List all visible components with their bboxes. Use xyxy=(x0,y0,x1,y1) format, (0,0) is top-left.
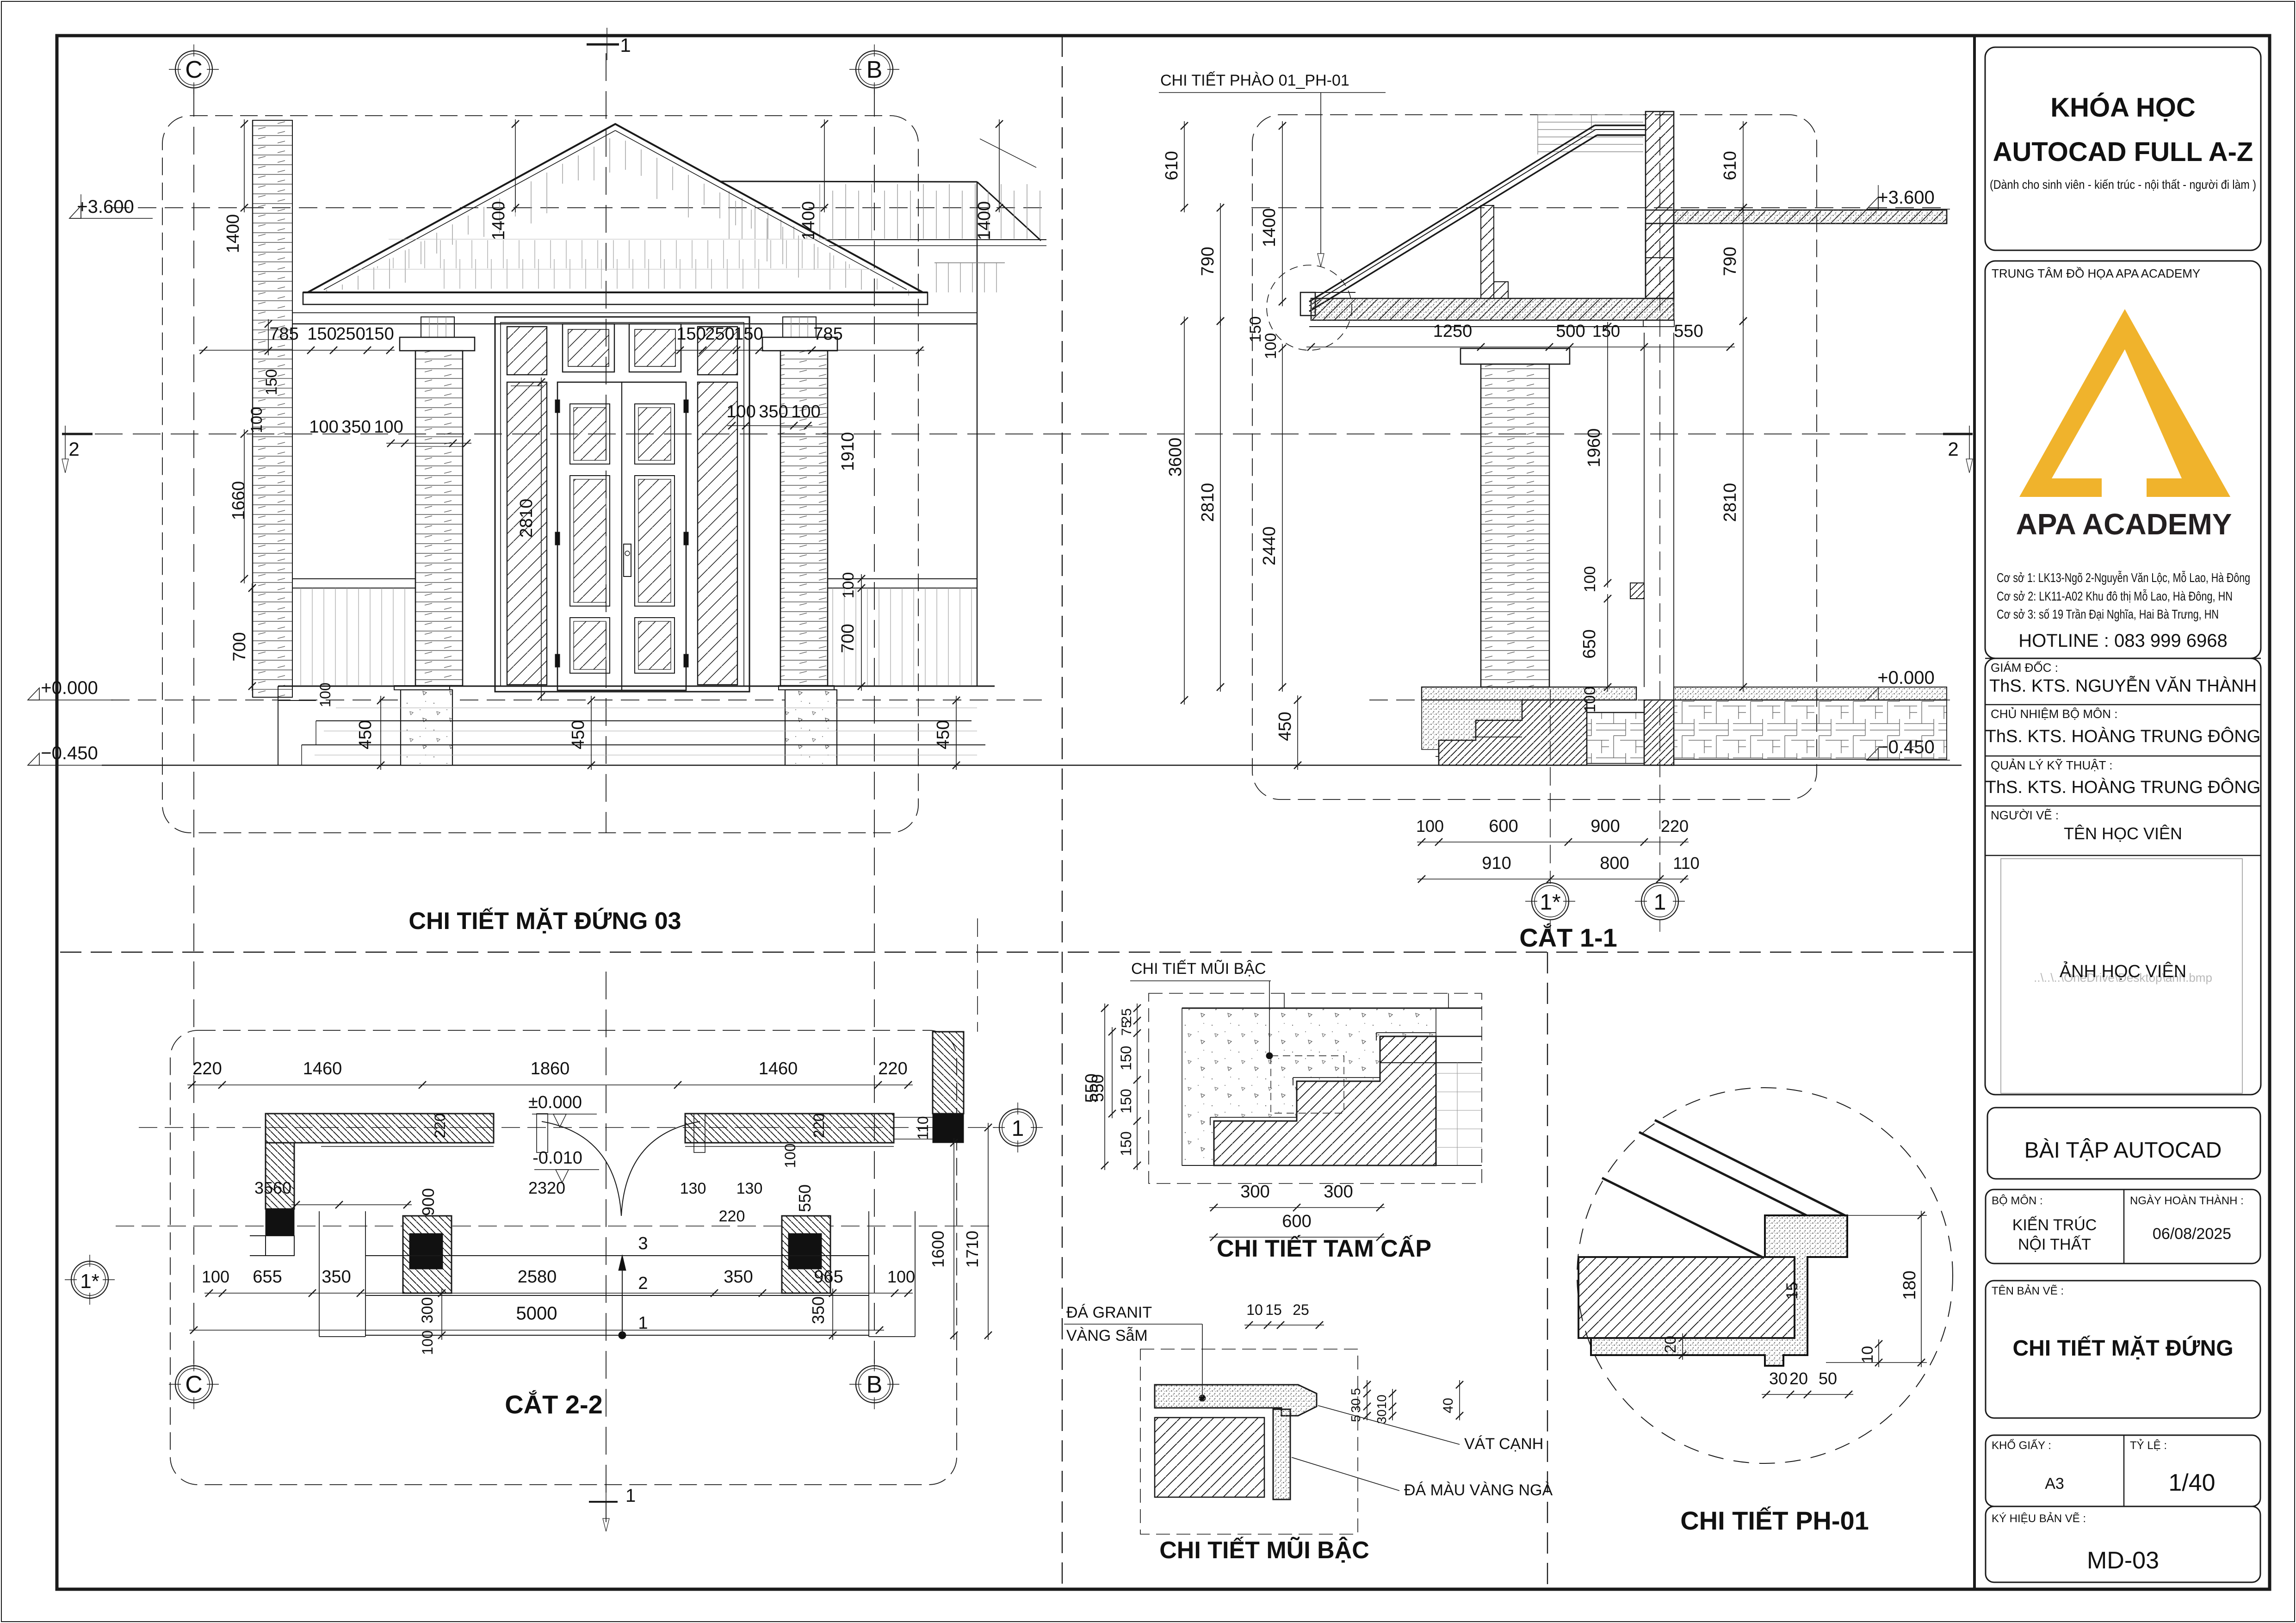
svg-text:910: 910 xyxy=(1482,854,1511,873)
svg-text:APA ACADEMY: APA ACADEMY xyxy=(2016,508,2232,541)
svg-text:700: 700 xyxy=(230,632,249,661)
svg-text:350: 350 xyxy=(322,1267,351,1287)
svg-text:785: 785 xyxy=(269,324,298,344)
svg-text:50: 50 xyxy=(1819,1369,1837,1388)
svg-text:75: 75 xyxy=(1119,1020,1134,1035)
svg-text:150: 150 xyxy=(1118,1131,1134,1156)
svg-text:+3.600: +3.600 xyxy=(1877,187,1934,208)
svg-text:CHI TIẾT MŨI BẬC: CHI TIẾT MŨI BẬC xyxy=(1131,960,1266,978)
svg-text:HOTLINE : 083 999 6968: HOTLINE : 083 999 6968 xyxy=(2018,631,2227,651)
svg-text:2810: 2810 xyxy=(517,499,536,538)
svg-text:100: 100 xyxy=(202,1267,229,1286)
svg-text:100: 100 xyxy=(374,417,403,437)
svg-text:1*: 1* xyxy=(1540,890,1560,915)
svg-text:(Dành cho sinh viên - kiến tr: (Dành cho sinh viên - kiến trúc - nội th… xyxy=(1990,178,2256,192)
svg-text:30: 30 xyxy=(1769,1369,1788,1388)
svg-text:10: 10 xyxy=(1246,1301,1263,1318)
svg-text:2810: 2810 xyxy=(1198,483,1218,522)
svg-text:1250: 1250 xyxy=(1433,322,1473,341)
svg-text:100: 100 xyxy=(1416,817,1444,836)
svg-text:KHÓA HỌC: KHÓA HỌC xyxy=(2050,93,2196,123)
svg-text:KHỔ GIẤY :: KHỔ GIẤY : xyxy=(1992,1439,2051,1452)
svg-text:550: 550 xyxy=(1674,322,1703,341)
svg-text:300: 300 xyxy=(419,1297,436,1324)
svg-text:10: 10 xyxy=(1859,1346,1876,1363)
svg-text:110: 110 xyxy=(1673,854,1699,873)
svg-text:655: 655 xyxy=(253,1267,282,1287)
svg-text:350: 350 xyxy=(341,417,371,437)
svg-text:B: B xyxy=(866,56,883,83)
svg-text:250: 250 xyxy=(336,324,365,344)
svg-text:1400: 1400 xyxy=(223,214,243,254)
svg-text:A3: A3 xyxy=(2045,1475,2064,1493)
svg-text:1400: 1400 xyxy=(489,201,508,241)
svg-text:CẮT 1-1: CẮT 1-1 xyxy=(1519,923,1617,952)
svg-text:TRUNG TÂM ĐỒ HỌA APA ACADEMY: TRUNG TÂM ĐỒ HỌA APA ACADEMY xyxy=(1992,266,2200,280)
svg-text:610: 610 xyxy=(1162,151,1182,180)
svg-text:220: 220 xyxy=(878,1059,907,1078)
svg-text:KIẾN TRÚC: KIẾN TRÚC xyxy=(2012,1216,2097,1234)
svg-text:BÀI TẬP AUTOCAD: BÀI TẬP AUTOCAD xyxy=(2024,1138,2222,1163)
svg-text:610: 610 xyxy=(1720,151,1740,180)
svg-text:1910: 1910 xyxy=(838,432,858,471)
svg-text:1960: 1960 xyxy=(1584,428,1604,468)
svg-text:Cơ sở 2: LK11-A02 Khu đô thị M: Cơ sở 2: LK11-A02 Khu đô thị Mỗ Lao, Hà … xyxy=(1997,589,2233,603)
svg-text:600: 600 xyxy=(1489,817,1518,836)
svg-text:Cơ sở 3: số 19 Trần Đại Nghĩa,: Cơ sở 3: số 19 Trần Đại Nghĩa, Hai Bà Tr… xyxy=(1997,607,2219,621)
svg-text:ĐÁ MÀU VÀNG NGÀ: ĐÁ MÀU VÀNG NGÀ xyxy=(1404,1481,1553,1499)
svg-text:1460: 1460 xyxy=(303,1059,342,1078)
svg-text:NGƯỜI VẼ :: NGƯỜI VẼ : xyxy=(1991,808,2059,822)
svg-text:220: 220 xyxy=(811,1113,827,1138)
svg-text:B: B xyxy=(866,1371,883,1398)
svg-text:150: 150 xyxy=(1592,322,1620,341)
svg-text:150: 150 xyxy=(676,324,706,344)
svg-text:1/40: 1/40 xyxy=(2168,1469,2215,1496)
svg-text:450: 450 xyxy=(569,720,588,749)
svg-text:2: 2 xyxy=(68,438,79,460)
svg-text:100: 100 xyxy=(1581,687,1599,713)
svg-text:20: 20 xyxy=(1662,1336,1679,1353)
svg-text:CHI TIẾT TAM CẤP: CHI TIẾT TAM CẤP xyxy=(1217,1235,1431,1262)
svg-text:20: 20 xyxy=(1789,1369,1808,1388)
svg-text:150: 150 xyxy=(307,324,336,344)
svg-text:ĐÁ GRANIT: ĐÁ GRANIT xyxy=(1066,1304,1152,1321)
svg-text:3: 3 xyxy=(638,1234,648,1253)
svg-text:CHI TIẾT PH-01: CHI TIẾT PH-01 xyxy=(1680,1506,1869,1535)
svg-text:100: 100 xyxy=(248,407,266,434)
svg-text:30: 30 xyxy=(1374,1409,1389,1424)
svg-text:NỘI THẤT: NỘI THẤT xyxy=(2018,1236,2091,1253)
svg-text:450: 450 xyxy=(1275,712,1295,741)
svg-text:1: 1 xyxy=(620,34,631,56)
svg-text:1400: 1400 xyxy=(975,201,994,241)
svg-text:MD-03: MD-03 xyxy=(2087,1547,2159,1574)
svg-text:1: 1 xyxy=(1012,1116,1024,1141)
svg-text:CHI TIẾT MẶT ĐỨNG: CHI TIẾT MẶT ĐỨNG xyxy=(2012,1335,2233,1361)
svg-text:220: 220 xyxy=(192,1059,222,1078)
svg-text:100: 100 xyxy=(840,572,857,599)
svg-text:100: 100 xyxy=(791,402,820,421)
svg-text:100: 100 xyxy=(309,417,338,437)
svg-text:5000: 5000 xyxy=(516,1303,557,1324)
svg-text:100: 100 xyxy=(419,1330,436,1355)
svg-text:350: 350 xyxy=(724,1267,753,1287)
svg-text:300: 300 xyxy=(1324,1182,1353,1202)
svg-text:06/08/2025: 06/08/2025 xyxy=(2153,1225,2231,1243)
svg-text:790: 790 xyxy=(1720,247,1740,276)
svg-text:25: 25 xyxy=(1293,1301,1309,1318)
svg-text:1460: 1460 xyxy=(759,1059,798,1078)
svg-text:ThS. KTS. HOÀNG TRUNG ĐÔNG: ThS. KTS. HOÀNG TRUNG ĐÔNG xyxy=(1986,777,2261,797)
svg-text:100: 100 xyxy=(317,682,334,707)
svg-text:Cơ sở 1: LK13-Ngõ 2-Nguyễn Văn: Cơ sở 1: LK13-Ngõ 2-Nguyễn Văn Lộc, Mỗ L… xyxy=(1997,570,2250,585)
svg-text:+0.000: +0.000 xyxy=(1877,668,1934,688)
svg-text:1: 1 xyxy=(1654,890,1666,915)
svg-text:1400: 1400 xyxy=(1260,208,1279,248)
svg-text:1860: 1860 xyxy=(531,1059,570,1078)
svg-text:350: 350 xyxy=(759,402,788,421)
svg-text:1600: 1600 xyxy=(928,1231,947,1268)
svg-text:150: 150 xyxy=(263,369,280,396)
svg-text:350: 350 xyxy=(809,1296,828,1324)
svg-text:100: 100 xyxy=(1262,333,1280,359)
svg-text:790: 790 xyxy=(1198,247,1218,276)
svg-text:150: 150 xyxy=(365,324,394,344)
svg-text:100: 100 xyxy=(1581,566,1599,593)
svg-text:40: 40 xyxy=(1441,1398,1456,1413)
svg-text:2580: 2580 xyxy=(518,1267,557,1287)
svg-text:CẮT 2-2: CẮT 2-2 xyxy=(505,1390,603,1419)
svg-text:QUẢN LÝ KỸ THUẬT :: QUẢN LÝ KỸ THUẬT : xyxy=(1991,758,2112,772)
svg-text:KÝ HIỆU BẢN VẼ :: KÝ HIỆU BẢN VẼ : xyxy=(1992,1511,2086,1525)
svg-text:180: 180 xyxy=(1900,1270,1919,1300)
svg-text:1710: 1710 xyxy=(963,1231,982,1268)
svg-text:965: 965 xyxy=(814,1267,843,1287)
svg-text:TỶ LỆ :: TỶ LỆ : xyxy=(2130,1438,2167,1452)
svg-text:±0.000: ±0.000 xyxy=(528,1093,582,1112)
svg-text:1: 1 xyxy=(625,1486,636,1506)
svg-text:ẢNH HỌC VIÊN: ẢNH HỌC VIÊN xyxy=(2060,961,2186,981)
svg-text:10: 10 xyxy=(1374,1394,1389,1409)
svg-text:150: 150 xyxy=(1118,1046,1134,1070)
svg-text:700: 700 xyxy=(838,624,858,653)
svg-text:AUTOCAD FULL A-Z: AUTOCAD FULL A-Z xyxy=(1993,137,2253,167)
svg-text:TÊN BẢN VẼ :: TÊN BẢN VẼ : xyxy=(1992,1284,2064,1297)
svg-text:220: 220 xyxy=(432,1113,448,1138)
svg-text:TÊN HỌC VIÊN: TÊN HỌC VIÊN xyxy=(2064,824,2182,843)
svg-text:220: 220 xyxy=(719,1208,745,1225)
svg-text:30: 30 xyxy=(1349,1398,1363,1412)
svg-text:ThS. KTS. HOÀNG TRUNG ĐÔNG: ThS. KTS. HOÀNG TRUNG ĐÔNG xyxy=(1986,726,2261,746)
svg-text:785: 785 xyxy=(813,324,842,344)
svg-text:NGÀY HOÀN THÀNH :: NGÀY HOÀN THÀNH : xyxy=(2130,1195,2244,1207)
svg-text:2320: 2320 xyxy=(528,1178,565,1197)
svg-text:130: 130 xyxy=(680,1180,706,1197)
svg-text:130: 130 xyxy=(736,1180,763,1197)
svg-text:15: 15 xyxy=(1265,1301,1282,1318)
svg-text:450: 450 xyxy=(356,720,375,749)
svg-text:220: 220 xyxy=(1661,817,1689,836)
svg-text:600: 600 xyxy=(1282,1212,1311,1231)
svg-text:2810: 2810 xyxy=(1720,483,1740,522)
svg-text:110: 110 xyxy=(915,1116,931,1140)
svg-text:2440: 2440 xyxy=(1260,527,1279,566)
svg-text:+0.000: +0.000 xyxy=(41,678,98,698)
svg-text:3600: 3600 xyxy=(1166,438,1185,477)
svg-text:450: 450 xyxy=(934,720,953,749)
svg-text:150: 150 xyxy=(734,324,763,344)
svg-text:5: 5 xyxy=(1349,1415,1363,1422)
svg-text:150: 150 xyxy=(1118,1089,1134,1113)
svg-text:900: 900 xyxy=(1590,817,1620,836)
svg-text:−0.450: −0.450 xyxy=(41,743,98,763)
svg-text:BỘ MÔN :: BỘ MÔN : xyxy=(1992,1194,2043,1207)
svg-text:5: 5 xyxy=(1349,1388,1363,1395)
svg-text:CHI TIẾT MẶT ĐỨNG 03: CHI TIẾT MẶT ĐỨNG 03 xyxy=(408,907,681,935)
svg-text:-0.010: -0.010 xyxy=(532,1148,582,1168)
svg-text:100: 100 xyxy=(782,1143,798,1168)
svg-text:1*: 1* xyxy=(80,1270,99,1293)
svg-text:650: 650 xyxy=(1580,629,1599,658)
svg-text:800: 800 xyxy=(1600,854,1629,873)
svg-text:300: 300 xyxy=(1240,1182,1269,1202)
svg-text:2: 2 xyxy=(1948,438,1958,460)
svg-text:550: 550 xyxy=(795,1184,814,1212)
svg-text:C: C xyxy=(185,1371,203,1398)
svg-text:CHỦ NHIỆM BỘ MÔN :: CHỦ NHIỆM BỘ MÔN : xyxy=(1991,706,2117,721)
svg-text:VÁT CẠNH: VÁT CẠNH xyxy=(1464,1435,1543,1453)
svg-text:3560: 3560 xyxy=(254,1178,291,1197)
svg-text:500: 500 xyxy=(1556,322,1585,341)
svg-text:C: C xyxy=(185,56,203,83)
svg-text:15: 15 xyxy=(1783,1282,1801,1300)
svg-text:100: 100 xyxy=(887,1267,915,1286)
svg-text:250: 250 xyxy=(705,324,734,344)
svg-text:ThS. KTS. NGUYỄN VĂN THÀNH: ThS. KTS. NGUYỄN VĂN THÀNH xyxy=(1989,675,2257,696)
svg-text:550: 550 xyxy=(1082,1073,1102,1103)
svg-text:2: 2 xyxy=(638,1274,648,1293)
svg-text:VÀNG SẫM: VÀNG SẫM xyxy=(1066,1327,1148,1344)
svg-text:1400: 1400 xyxy=(799,201,818,241)
svg-text:CHI TIẾT PHÀO 01_PH-01: CHI TIẾT PHÀO 01_PH-01 xyxy=(1160,72,1349,89)
svg-text:1660: 1660 xyxy=(229,481,248,520)
svg-text:CHI TIẾT MŨI BẬC: CHI TIẾT MŨI BẬC xyxy=(1159,1536,1369,1564)
svg-text:100: 100 xyxy=(726,402,755,421)
svg-text:900: 900 xyxy=(419,1188,438,1216)
svg-text:+3.600: +3.600 xyxy=(77,197,134,217)
svg-text:GIÁM ĐỐC :: GIÁM ĐỐC : xyxy=(1991,661,2058,675)
